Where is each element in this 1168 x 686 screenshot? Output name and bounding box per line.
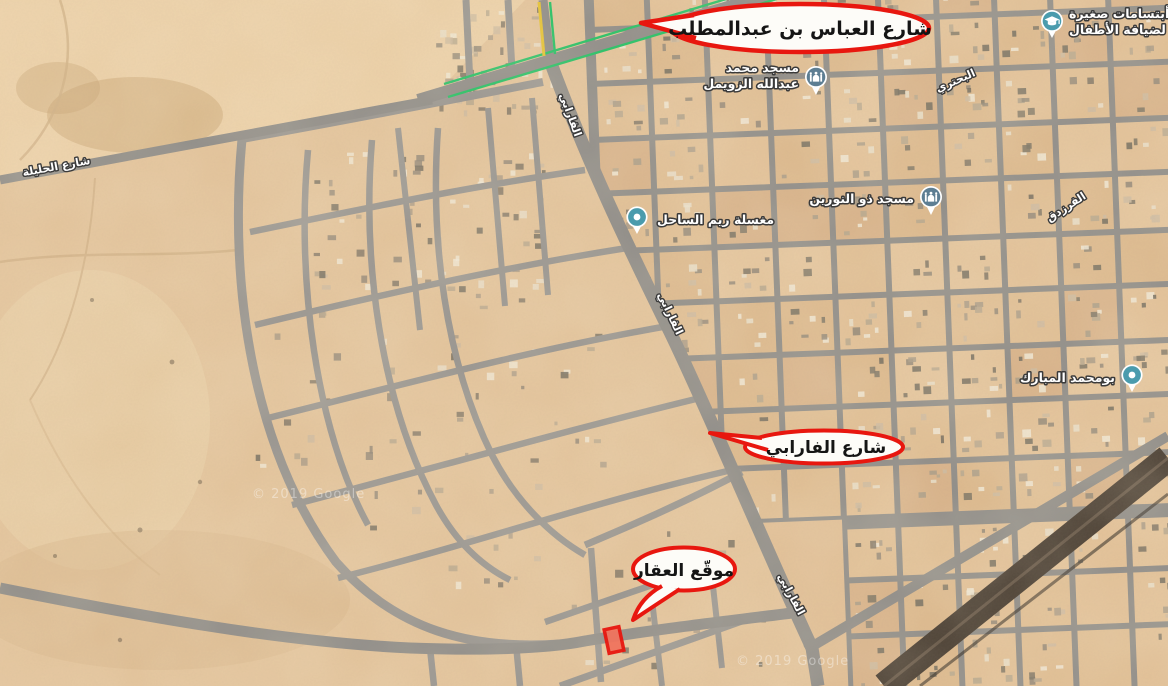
property-marker bbox=[604, 627, 624, 654]
property-rectangle bbox=[604, 627, 624, 654]
poi-label: مغسلة ريم الساحل bbox=[657, 212, 774, 227]
poi-label: مركز أبتسامات صغيرة bbox=[1069, 5, 1168, 21]
callout-label: شارع الفارابي bbox=[766, 438, 886, 458]
google-watermark: © 2019 Google bbox=[736, 654, 849, 669]
satellite-base bbox=[0, 0, 1168, 686]
poi-label: عبدالله الزويمل bbox=[703, 76, 799, 91]
callout-label: موقّع العقار bbox=[633, 559, 734, 581]
callout-label: شارع العباس بن عبدالمطلب bbox=[668, 18, 932, 40]
map-canvas[interactable]: شارع الحليلة الفارابي الفارابي الفارابي … bbox=[0, 0, 1168, 686]
poi-label: مسجد ذو النورين bbox=[809, 191, 914, 206]
poi-label: بومحمد المبارك bbox=[1020, 370, 1115, 385]
google-watermark: © 2019 Google bbox=[252, 487, 365, 502]
poi-label: لضيافة الأطفال bbox=[1069, 22, 1166, 37]
poi-label: مسجد محمد bbox=[726, 60, 799, 75]
